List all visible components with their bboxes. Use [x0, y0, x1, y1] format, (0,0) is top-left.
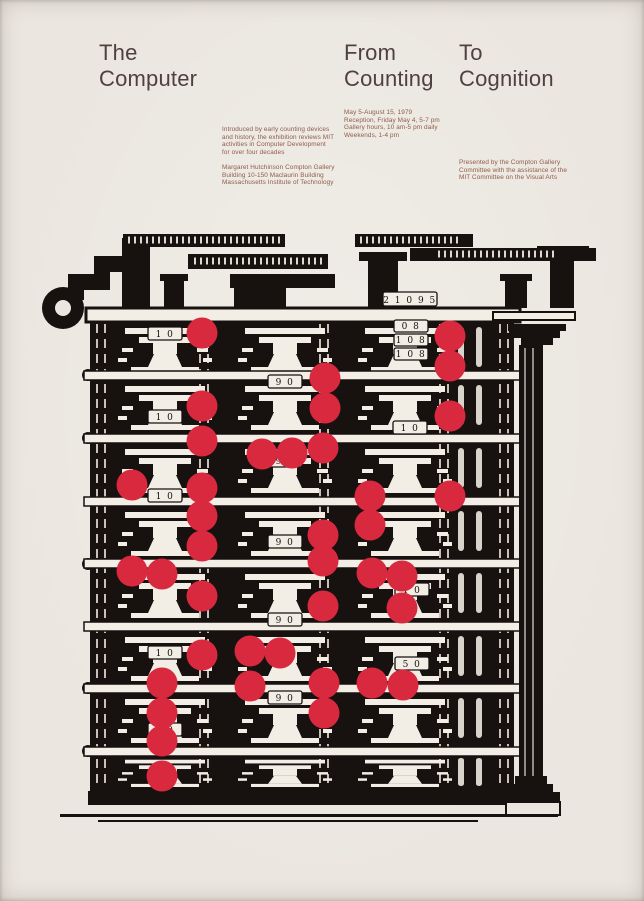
info-line: Introduced by early counting devices: [222, 126, 334, 134]
red-dot: [187, 640, 218, 671]
red-dot: [147, 698, 178, 729]
info-line: Margaret Hutchinson Compton Gallery: [222, 164, 335, 172]
red-dot: [117, 470, 148, 501]
exhibition-poster: The Computer From Counting To Cognition …: [0, 0, 644, 901]
info-line: Weekends, 1-4 pm: [344, 132, 440, 140]
red-dot: [187, 391, 218, 422]
info-line: Committee with the assistance of the: [459, 167, 567, 175]
svg-text:1 0: 1 0: [156, 330, 175, 340]
info-intro: Introduced by early counting devices and…: [222, 126, 334, 157]
title-line: Counting: [344, 66, 434, 92]
title-the-computer: The Computer: [99, 40, 197, 92]
info-line: Building 10-150 Maclaurin Building: [222, 172, 335, 180]
title-to-cognition: To Cognition: [459, 40, 554, 92]
red-dot: [187, 581, 218, 612]
red-dot: [387, 561, 418, 592]
red-dot: [388, 670, 419, 701]
digit-plate-text: 2 1 0 9 5: [383, 296, 437, 306]
title-line: To: [459, 40, 554, 66]
red-dot: [310, 363, 341, 394]
red-dot: [357, 558, 388, 589]
red-dot: [187, 501, 218, 532]
red-dot: [117, 556, 148, 587]
info-line: activities in Computer Development: [222, 141, 334, 149]
red-dot: [355, 481, 386, 512]
red-dot: [355, 510, 386, 541]
info-dates: May 5-August 15, 1979 Reception, Friday …: [344, 109, 440, 140]
info-line: Presented by the Compton Gallery: [459, 159, 567, 167]
red-dot: [187, 531, 218, 562]
red-dot: [147, 559, 178, 590]
svg-text:9 0: 9 0: [276, 378, 295, 388]
svg-text:5 0: 5 0: [403, 660, 422, 670]
info-line: and history, the exhibition reviews MIT: [222, 134, 334, 142]
info-line: MIT Committee on the Visual Arts: [459, 174, 567, 182]
svg-text:9 0: 9 0: [276, 694, 295, 704]
svg-text:0 8: 0 8: [402, 322, 421, 332]
svg-text:1 0: 1 0: [156, 649, 175, 659]
red-dot: [357, 668, 388, 699]
svg-text:1 0: 1 0: [156, 413, 175, 423]
title-line: Computer: [99, 66, 197, 92]
red-dot: [247, 439, 278, 470]
info-line: for over four decades: [222, 149, 334, 157]
title-line: Cognition: [459, 66, 554, 92]
red-dot: [435, 351, 466, 382]
red-dot: [309, 668, 340, 699]
red-dot: [435, 481, 466, 512]
red-dot: [435, 401, 466, 432]
red-dot: [187, 473, 218, 504]
red-dot: [147, 668, 178, 699]
red-dot: [435, 321, 466, 352]
red-dot: [235, 671, 266, 702]
red-dot: [187, 426, 218, 457]
info-line: Massachusetts Institute of Technology: [222, 179, 335, 187]
info-credits: Presented by the Compton Gallery Committ…: [459, 159, 567, 182]
info-location: Margaret Hutchinson Compton Gallery Buil…: [222, 164, 335, 187]
red-dot: [308, 591, 339, 622]
title-from-counting: From Counting: [344, 40, 434, 92]
title-line: The: [99, 40, 197, 66]
svg-text:1 0 8: 1 0 8: [396, 336, 426, 346]
red-dot: [387, 593, 418, 624]
red-dot: [265, 638, 296, 669]
svg-text:9 0: 9 0: [276, 538, 295, 548]
red-dot: [308, 433, 339, 464]
red-dot: [235, 636, 266, 667]
svg-text:1 0: 1 0: [156, 492, 175, 502]
red-dot: [277, 438, 308, 469]
title-line: From: [344, 40, 434, 66]
svg-text:1 0: 1 0: [401, 424, 420, 434]
red-dot: [147, 726, 178, 757]
svg-text:9 0: 9 0: [276, 616, 295, 626]
red-dot: [147, 761, 178, 792]
red-dot: [308, 546, 339, 577]
info-line: Reception, Friday May 4, 5-7 pm: [344, 117, 440, 125]
red-dot: [310, 393, 341, 424]
red-dot: [309, 698, 340, 729]
info-line: May 5-August 15, 1979: [344, 109, 440, 117]
info-line: Gallery hours, 10 am-5 pm daily: [344, 124, 440, 132]
difference-engine-illustration: 2 1 0 9 5: [38, 224, 598, 834]
svg-text:1 0 8: 1 0 8: [396, 350, 426, 360]
red-dot: [187, 318, 218, 349]
